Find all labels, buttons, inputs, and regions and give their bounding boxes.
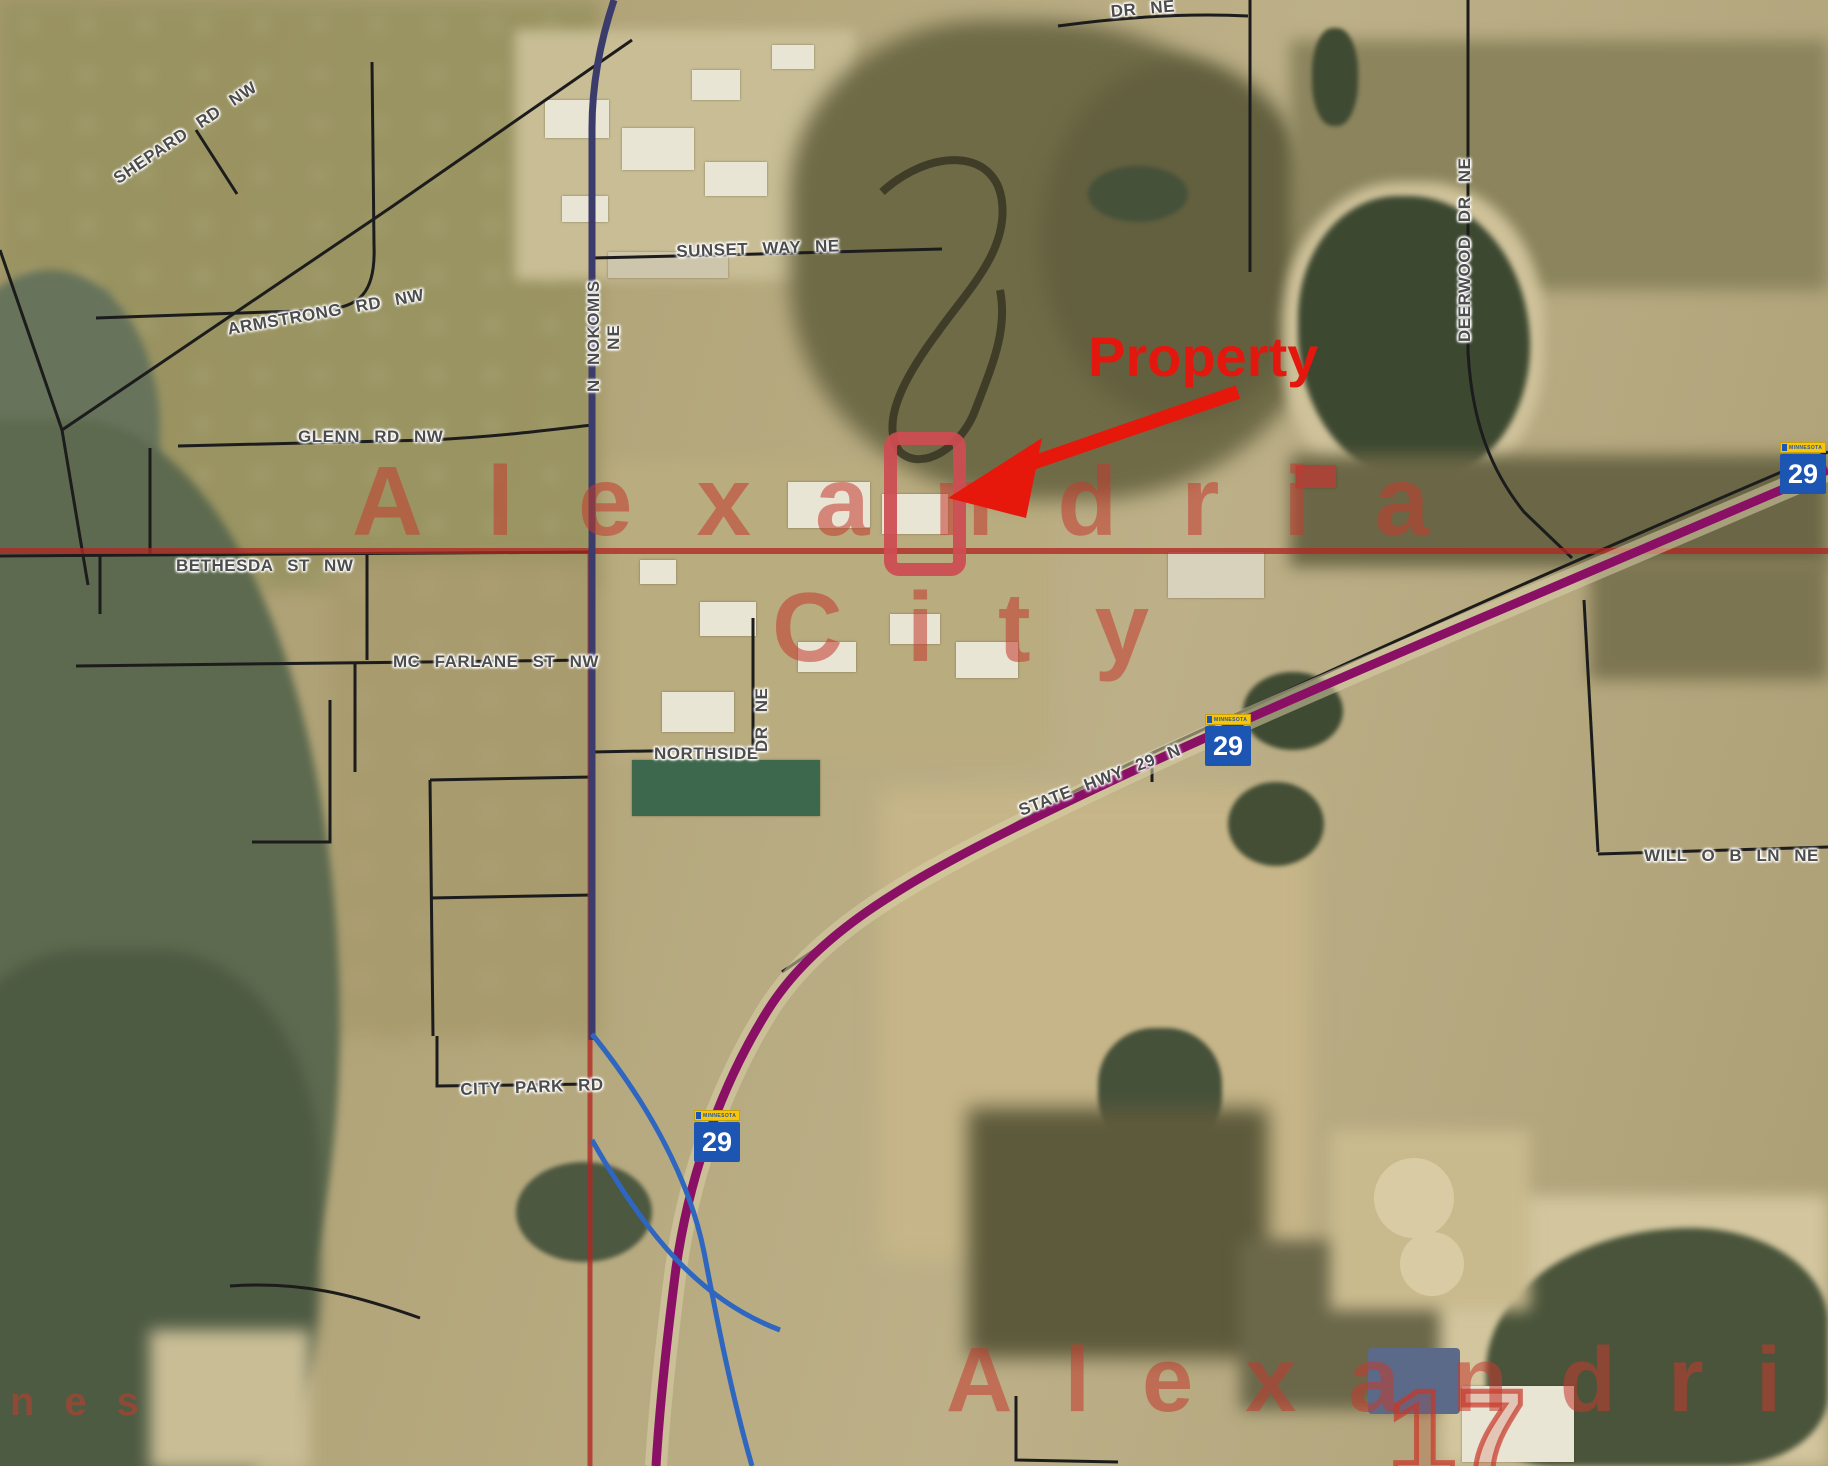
property-arrow-shaft <box>1012 392 1238 470</box>
annotation-layer <box>0 0 1828 1466</box>
aerial-map: SHEPARD RD NW ARMSTRONG RD NW GLENN RD N… <box>0 0 1828 1466</box>
property-arrow-head <box>948 438 1042 518</box>
property-label: Property <box>1088 324 1318 389</box>
